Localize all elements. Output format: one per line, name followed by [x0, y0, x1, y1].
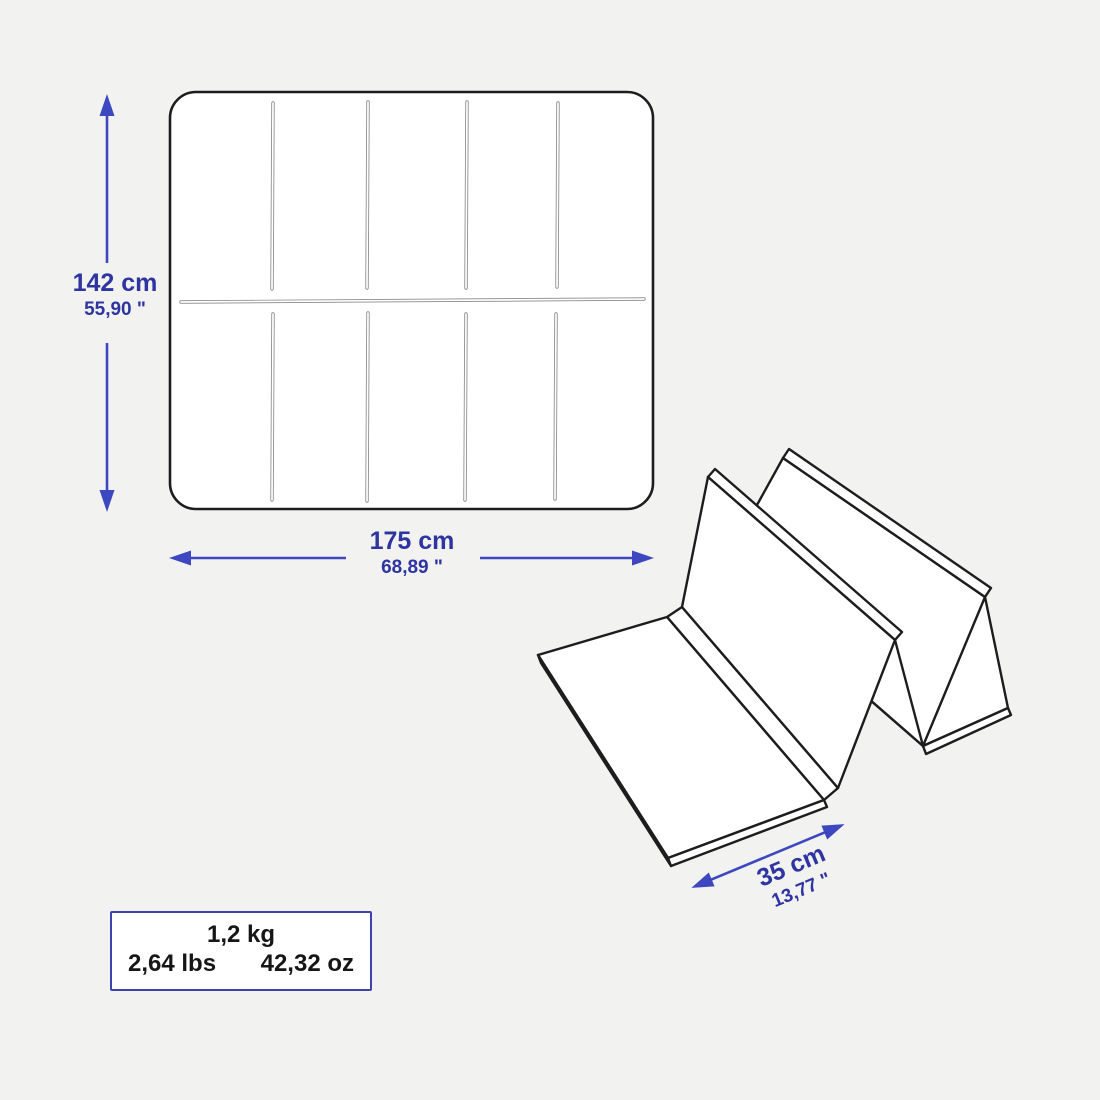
height-metric-value: 142 cm	[45, 270, 185, 296]
height-dimension-label: 142 cm 55,90 "	[45, 270, 185, 321]
weight-kg-value: 1,2 kg	[112, 921, 370, 949]
height-imperial-value: 55,90 "	[45, 299, 185, 321]
weight-lbs-value: 2,64 lbs	[128, 949, 216, 979]
product-dimension-diagram: 142 cm 55,90 " 175 cm 68,89 " 35 cm 13,7…	[0, 0, 1100, 1100]
unfolded-mat-icon	[170, 92, 653, 509]
weight-oz-value: 42,32 oz	[261, 949, 354, 979]
width-imperial-value: 68,89 "	[336, 557, 488, 579]
weight-info-box: 1,2 kg 2,64 lbs 42,32 oz	[110, 911, 372, 991]
width-dimension-label: 175 cm 68,89 "	[336, 528, 488, 579]
folded-mat-icon	[538, 449, 1011, 866]
width-metric-value: 175 cm	[336, 528, 488, 554]
